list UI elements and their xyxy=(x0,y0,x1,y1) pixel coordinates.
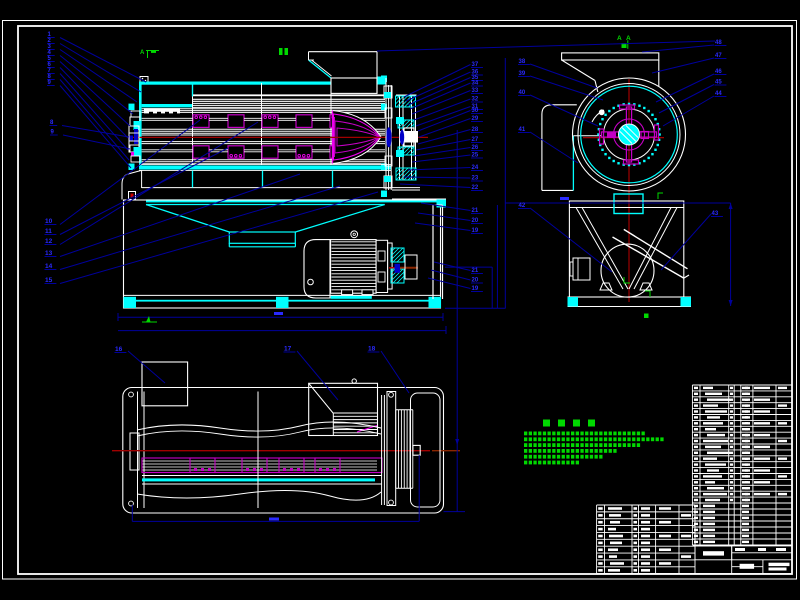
svg-text:A: A xyxy=(140,50,145,56)
svg-text:16: 16 xyxy=(115,346,123,353)
svg-text:14: 14 xyxy=(45,263,53,270)
svg-text:15: 15 xyxy=(45,277,53,284)
svg-text:17: 17 xyxy=(284,346,292,353)
svg-text:A: A xyxy=(617,35,622,42)
svg-text:18: 18 xyxy=(368,346,376,353)
svg-text:13: 13 xyxy=(45,250,53,257)
svg-text:11: 11 xyxy=(45,228,52,235)
svg-text:10: 10 xyxy=(45,218,53,225)
svg-text:A: A xyxy=(626,35,631,42)
svg-text:12: 12 xyxy=(45,238,53,245)
